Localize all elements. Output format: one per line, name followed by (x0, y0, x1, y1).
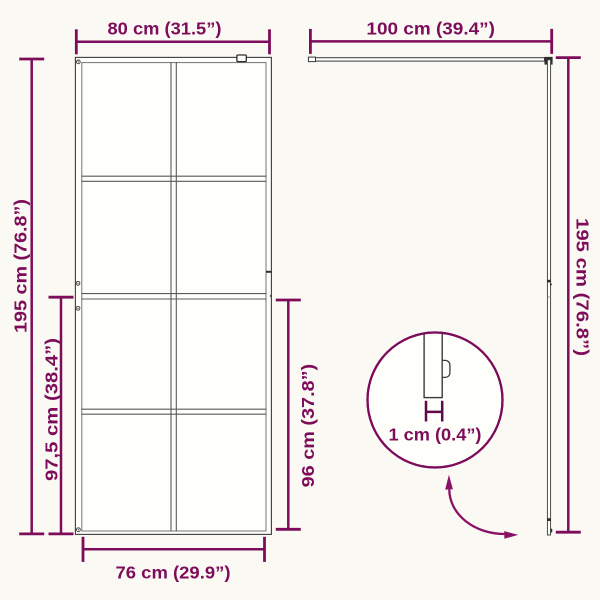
svg-text:1 cm (0.4”): 1 cm (0.4”) (389, 425, 482, 445)
svg-text:76 cm (29.9”): 76 cm (29.9”) (116, 563, 231, 583)
svg-text:97,5 cm (38.4”): 97,5 cm (38.4”) (42, 338, 62, 481)
svg-text:195 cm (76.8”): 195 cm (76.8”) (573, 218, 593, 356)
svg-text:96 cm (37.8”): 96 cm (37.8”) (298, 364, 318, 488)
svg-text:100 cm (39.4”): 100 cm (39.4”) (366, 18, 495, 38)
svg-text:80 cm (31.5”): 80 cm (31.5”) (108, 18, 222, 38)
svg-text:195 cm (76.8”): 195 cm (76.8”) (11, 199, 31, 333)
